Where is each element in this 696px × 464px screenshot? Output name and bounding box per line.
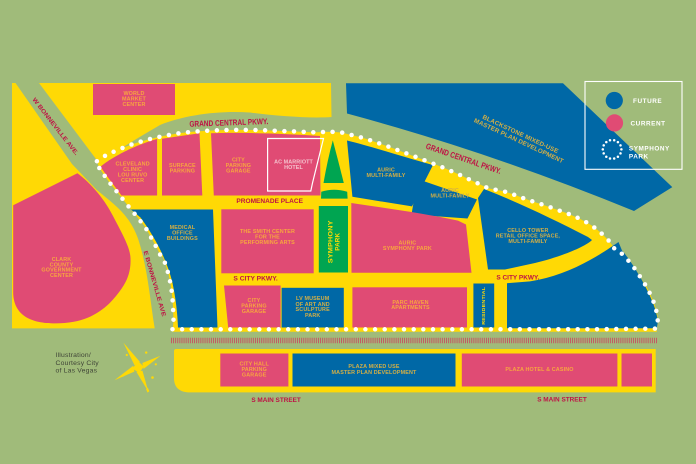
svg-text:WORLDMARKETCENTER: WORLDMARKETCENTER: [122, 91, 147, 108]
svg-text:CURRENT: CURRENT: [631, 121, 666, 128]
svg-text:SYMPHONY: SYMPHONY: [327, 220, 334, 264]
svg-text:SURFACEPARKING: SURFACEPARKING: [169, 163, 196, 175]
svg-text:SYMPHONY: SYMPHONY: [629, 145, 670, 152]
svg-text:S CITY PKWY.: S CITY PKWY.: [233, 275, 278, 282]
svg-text:CITY HALLPARKINGGARAGE: CITY HALLPARKINGGARAGE: [239, 362, 269, 379]
svg-text:PARK: PARK: [629, 154, 649, 161]
svg-text:PARC HAVENAPARTMENTS: PARC HAVENAPARTMENTS: [391, 300, 430, 311]
svg-text:S MAIN STREET: S MAIN STREET: [251, 397, 301, 404]
svg-text:S MAIN STREET: S MAIN STREET: [537, 396, 587, 403]
svg-text:FUTURE: FUTURE: [633, 98, 662, 105]
svg-text:PARK: PARK: [334, 233, 341, 251]
svg-text:RESIDENTIAL: RESIDENTIAL: [481, 287, 486, 325]
svg-text:PROMENADE PLACE: PROMENADE PLACE: [236, 198, 303, 205]
svg-text:PLAZA HOTEL & CASINO: PLAZA HOTEL & CASINO: [505, 367, 573, 373]
svg-text:S CITY PKWY.: S CITY PKWY.: [496, 274, 539, 281]
